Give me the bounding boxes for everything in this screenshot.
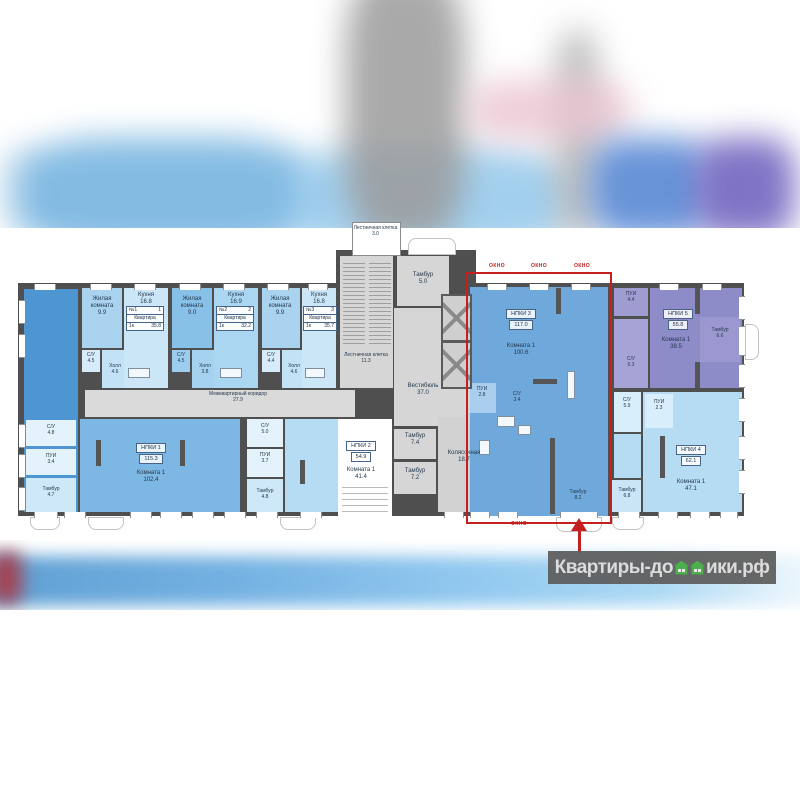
room-label-npki1-pui: ПУИ3.4 [26, 453, 76, 465]
watermark-text-suffix: ики.рф [706, 557, 769, 579]
room-label-apt1-kitchen: Кухня16.8 [124, 292, 168, 306]
window [19, 454, 25, 478]
pointer-arrow-line [578, 530, 581, 553]
okno-label: ОКНО [482, 263, 512, 269]
room-label-apt3-wc: С/У4.4 [261, 352, 281, 364]
stair-flight [369, 260, 391, 346]
room-label-apt3-living: Жилая комната9.9 [260, 296, 300, 318]
okno-label: ОКНО [524, 263, 554, 269]
apartment3-info-card: №33 Квартира 1к35.7 [303, 306, 337, 331]
unit-label-npki1: НПКИ 1115.3 [130, 443, 172, 464]
window [720, 512, 738, 518]
window [19, 300, 25, 324]
entrance-porch [408, 238, 456, 255]
room-npki5-tambur [700, 317, 740, 362]
page: Лестничная клетка3.0 Тамбур5.0 Лестнична… [0, 0, 800, 800]
room-label-npki4-wc: С/У5.9 [612, 397, 642, 409]
room-label-npki1-room: Комната 1102.4 [128, 470, 174, 484]
room-label-apt3-kitchen: Кухня16.8 [300, 292, 338, 306]
door-opening [34, 512, 58, 518]
window [308, 284, 328, 290]
room-label-apt2-kitchen: Кухня16.9 [214, 292, 258, 306]
window [130, 512, 152, 518]
room-label-npki4-tambur: Тамбур6.8 [610, 487, 644, 499]
window [64, 512, 86, 518]
room-label-npki5-tambur: Тамбур6.6 [700, 327, 740, 339]
entrance-porch [280, 517, 316, 530]
room-label-npki1-tambur: Тамбур4.7 [26, 486, 76, 498]
room-label-npki4-room: Комната 147.1 [666, 479, 716, 493]
room-label-apt2-wc: С/У4.5 [171, 352, 191, 364]
room-label-stair-small: Лестничная клетка3.0 [352, 225, 399, 237]
entrance-porch [745, 324, 759, 360]
window [690, 512, 710, 518]
room-label-apt2-hall: Холл3.8 [190, 363, 220, 375]
room-label-corridor: Межквартирный коридор27.9 [198, 391, 278, 403]
window [659, 284, 679, 290]
room-label-vestibule: Вестибюль37.0 [396, 383, 450, 397]
room-label-npki5-wc: С/У6.3 [615, 356, 647, 368]
room-label-apt1-living: Жилая комната9.9 [82, 296, 122, 318]
room-label-tambur-top: Тамбур5.0 [398, 272, 448, 286]
room-label-apt1-wc: С/У4.5 [81, 352, 101, 364]
window [256, 512, 278, 518]
unit-label-npki2: НПКИ 254.9 [340, 441, 382, 462]
window [739, 470, 745, 494]
entrance-porch [30, 517, 60, 530]
window [19, 424, 25, 448]
stair-flight [343, 260, 365, 346]
room-label-npki4-pui: ПУИ2.3 [643, 399, 675, 411]
window [19, 487, 25, 511]
window [300, 512, 322, 518]
room-npki1-main [80, 419, 240, 512]
entrance-porch [612, 517, 644, 530]
window [739, 398, 745, 422]
room-label-npki2-wc: С/У5.0 [247, 423, 283, 435]
window [19, 334, 25, 358]
window [658, 512, 678, 518]
apartment1-info-card: №11 Квартира 1к35.8 [126, 306, 164, 331]
window [702, 284, 722, 290]
okno-label: ОКНО [567, 263, 597, 269]
room-npki4-strip [614, 434, 641, 478]
room-label-tambur-a: Тамбур7.4 [394, 433, 436, 447]
window [739, 436, 745, 460]
window [223, 284, 245, 290]
window [134, 284, 156, 290]
house-icon [690, 561, 705, 575]
unit-label-npki5: НПКИ 555.8 [658, 309, 698, 330]
room-label-apt1-hall: Холл4.6 [100, 363, 130, 375]
room-npki5-wc [614, 319, 648, 388]
room-label-stair-main: Лестничная клетка11.3 [342, 352, 390, 364]
room-label-tambur-b: Тамбур7.2 [394, 468, 436, 482]
window [739, 364, 745, 388]
entrance-porch [88, 517, 124, 530]
door-opening [618, 512, 640, 518]
window [90, 284, 112, 290]
room-label-apt2-living: Жилая комната9.0 [172, 296, 212, 318]
room-label-npki2-tambur: Тамбур4.8 [247, 488, 283, 500]
window [34, 284, 56, 290]
window [444, 512, 464, 518]
watermark: Квартиры-до ики.рф [548, 551, 776, 584]
unit-label-npki4: НПКИ 462.1 [672, 445, 710, 466]
house-icon [674, 561, 689, 575]
watermark-text-prefix: Квартиры-до [555, 557, 673, 579]
window [224, 512, 246, 518]
blurred-background-top [0, 0, 800, 228]
window [267, 284, 289, 290]
window [192, 512, 214, 518]
window [160, 512, 182, 518]
room-label-npki1-wc: С/У4.8 [26, 424, 76, 436]
room-label-apt3-hall: Холл4.6 [280, 363, 308, 375]
apartment2-info-card: №22 Квартира 1к32.2 [216, 306, 254, 331]
room-label-npki5-room: Комната 138.5 [652, 337, 700, 351]
selected-unit-outline[interactable] [466, 272, 612, 524]
window [179, 284, 201, 290]
entrance-steps [342, 482, 388, 512]
room-label-npki2-room: Комната 141.4 [338, 467, 384, 481]
room-label-npki2-pui: ПУИ3.7 [247, 452, 283, 464]
window [739, 296, 745, 320]
room-label-npki5-pui: ПУИ4.4 [613, 291, 649, 303]
